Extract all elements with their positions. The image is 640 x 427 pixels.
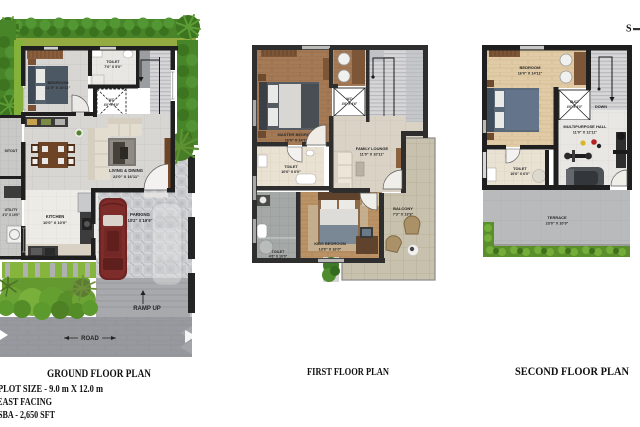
svg-text:KITCHEN: KITCHEN — [46, 214, 65, 219]
svg-text:KIDS BEDROOM: KIDS BEDROOM — [314, 241, 346, 246]
svg-text:FIRST FLOOR PLAN: FIRST FLOOR PLAN — [307, 367, 389, 378]
svg-text:W.D: W.D — [108, 98, 115, 102]
svg-text:EAST FACING: EAST FACING — [0, 397, 52, 408]
svg-text:TOILET: TOILET — [284, 165, 298, 169]
svg-text:SECOND FLOOR PLAN: SECOND FLOOR PLAN — [515, 366, 630, 378]
svg-text:W.D: W.D — [346, 97, 353, 101]
svg-text:11'0" X 12'11": 11'0" X 12'11" — [573, 131, 598, 135]
svg-text:DOWN: DOWN — [595, 105, 607, 109]
svg-text:4'6" X 10'0": 4'6" X 10'0" — [269, 255, 288, 259]
svg-text:UTILITY: UTILITY — [5, 208, 19, 212]
svg-text:LIVING & DINING: LIVING & DINING — [109, 168, 143, 173]
svg-text:BALCONY: BALCONY — [393, 206, 413, 211]
svg-text:16'0" X 14'11": 16'0" X 14'11" — [285, 139, 310, 143]
svg-text:11'0" X 10'11": 11'0" X 10'11" — [360, 153, 385, 157]
svg-text:4'0" X 4'0": 4'0" X 4'0" — [567, 105, 583, 109]
svg-text:SITOUT: SITOUT — [4, 149, 18, 153]
svg-text:MULTIPURPOSE HALL: MULTIPURPOSE HALL — [563, 124, 607, 129]
svg-text:7'6" X 5'0": 7'6" X 5'0" — [104, 65, 122, 69]
svg-text:TOILET: TOILET — [513, 167, 527, 171]
svg-text:TOILET: TOILET — [106, 60, 120, 64]
svg-text:3'3" X 10'0": 3'3" X 10'0" — [2, 213, 20, 217]
svg-text:10'0" X 10'0": 10'0" X 10'0" — [43, 220, 67, 225]
svg-text:23'0" X 10'9": 23'0" X 10'9" — [546, 222, 569, 226]
svg-text:4'0" X 4'0": 4'0" X 4'0" — [104, 103, 120, 107]
svg-text:S: S — [626, 24, 632, 35]
svg-text:TOILET: TOILET — [272, 250, 286, 254]
svg-text:TERRACE: TERRACE — [547, 215, 567, 220]
svg-text:10'6" X 6'0": 10'6" X 6'0" — [281, 170, 301, 174]
svg-text:RAMP UP: RAMP UP — [133, 306, 161, 312]
svg-text:PLOT SIZE - 9.0 m X 12.0 m: PLOT SIZE - 9.0 m X 12.0 m — [0, 384, 104, 395]
svg-text:BEDROOM: BEDROOM — [48, 80, 70, 85]
svg-text:ROAD: ROAD — [81, 336, 99, 342]
svg-text:GROUND FLOOR PLAN: GROUND FLOOR PLAN — [47, 366, 151, 380]
svg-text:FAMILY LOUNGE: FAMILY LOUNGE — [356, 146, 389, 151]
svg-text:13'0" X 16'0": 13'0" X 16'0" — [319, 248, 342, 252]
svg-text:10'6" X 6'0": 10'6" X 6'0" — [510, 172, 530, 176]
svg-text:DUCT: DUCT — [570, 100, 579, 104]
svg-text:4'6" X 4'6": 4'6" X 4'6" — [342, 102, 358, 106]
svg-text:PARKING: PARKING — [130, 212, 151, 217]
svg-text:BEDROOM: BEDROOM — [520, 65, 542, 70]
svg-text:SBA - 2,650 SFT: SBA - 2,650 SFT — [0, 410, 55, 421]
svg-text:10'2" X 19'9": 10'2" X 19'9" — [127, 218, 152, 223]
svg-text:22'0" X 16'11": 22'0" X 16'11" — [113, 174, 139, 179]
svg-text:16'0" X 14'11": 16'0" X 14'11" — [518, 72, 543, 76]
svg-text:11'0" X 10'11": 11'0" X 10'11" — [46, 86, 71, 90]
